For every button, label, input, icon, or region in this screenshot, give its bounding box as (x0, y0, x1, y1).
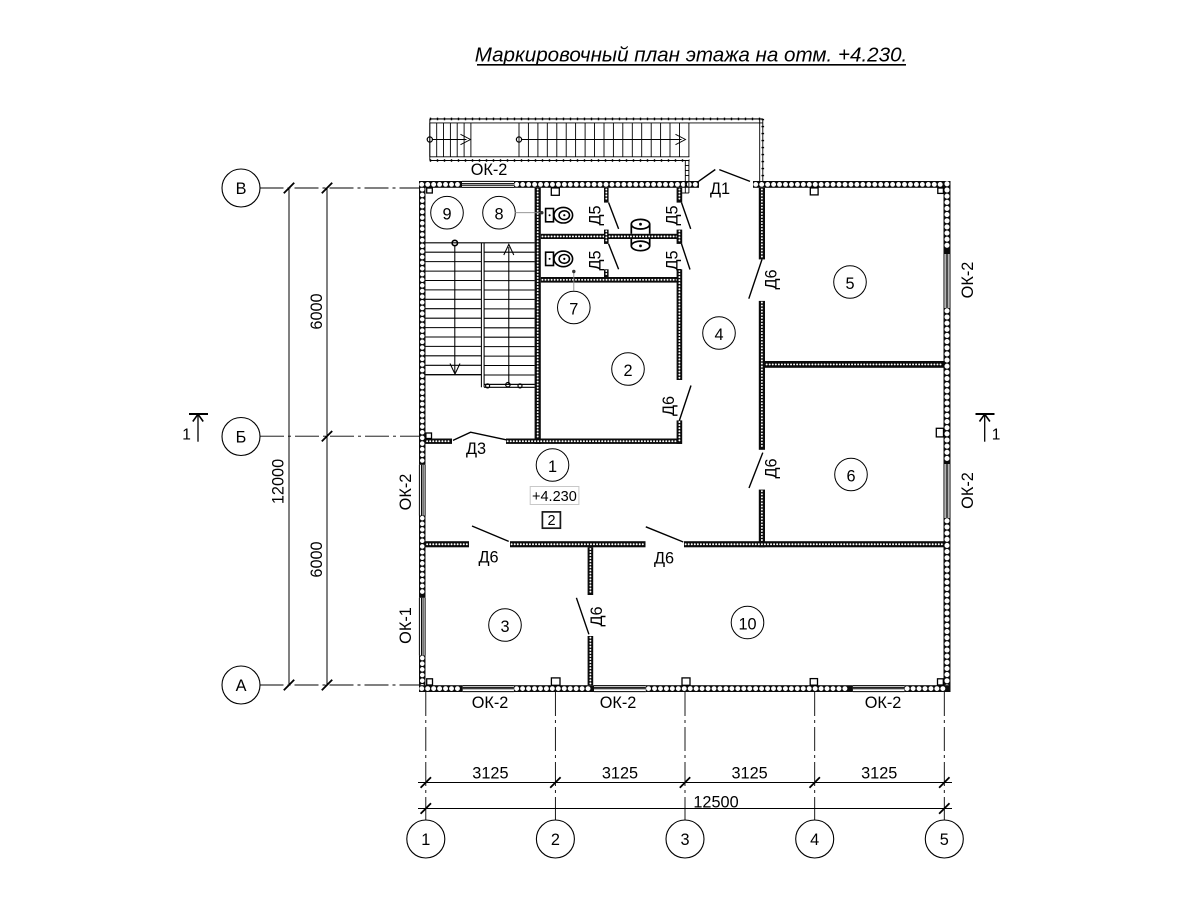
svg-text:+4.230: +4.230 (532, 489, 577, 505)
svg-text:ОК-2: ОК-2 (600, 694, 637, 712)
svg-text:ОК-2: ОК-2 (959, 262, 977, 299)
svg-text:1: 1 (992, 426, 1001, 443)
svg-text:2: 2 (547, 513, 555, 529)
svg-text:Д6: Д6 (660, 396, 678, 416)
svg-text:Д3: Д3 (466, 440, 486, 458)
svg-text:ОК-2: ОК-2 (471, 161, 508, 179)
svg-text:3: 3 (500, 618, 509, 636)
svg-text:Д6: Д6 (762, 269, 780, 289)
svg-text:1: 1 (421, 831, 430, 849)
svg-text:8: 8 (494, 206, 503, 224)
svg-text:ОК-2: ОК-2 (397, 474, 415, 511)
svg-text:2: 2 (551, 831, 560, 849)
svg-text:4: 4 (810, 831, 819, 849)
svg-text:Б: Б (236, 428, 247, 446)
svg-text:2: 2 (623, 362, 632, 380)
svg-text:10: 10 (738, 615, 756, 633)
svg-text:6000: 6000 (308, 293, 326, 329)
svg-text:3: 3 (680, 831, 689, 849)
svg-text:Д6: Д6 (762, 458, 780, 478)
svg-text:В: В (236, 180, 247, 198)
svg-text:Д5: Д5 (587, 250, 605, 270)
svg-text:12000: 12000 (270, 459, 288, 504)
svg-text:Д6: Д6 (588, 606, 606, 626)
svg-text:3125: 3125 (861, 765, 897, 783)
svg-text:3125: 3125 (472, 765, 508, 783)
svg-text:ОК-2: ОК-2 (472, 694, 509, 712)
svg-text:ОК-2: ОК-2 (959, 472, 977, 509)
svg-text:3125: 3125 (731, 765, 767, 783)
svg-text:Д5: Д5 (664, 250, 682, 270)
svg-text:9: 9 (442, 206, 451, 224)
svg-text:Маркировочный план этажа на от: Маркировочный план этажа на отм. +4.230. (475, 44, 908, 67)
svg-text:5: 5 (940, 831, 949, 849)
svg-text:ОК-1: ОК-1 (397, 607, 415, 644)
svg-text:4: 4 (714, 326, 723, 344)
svg-text:3125: 3125 (602, 765, 638, 783)
svg-text:7: 7 (569, 300, 578, 318)
svg-text:Д6: Д6 (654, 550, 674, 568)
svg-text:Д5: Д5 (664, 205, 682, 225)
svg-text:6000: 6000 (308, 541, 326, 577)
svg-text:6: 6 (846, 467, 855, 485)
svg-text:ОК-2: ОК-2 (865, 694, 902, 712)
svg-text:Д1: Д1 (710, 180, 730, 198)
svg-text:1: 1 (548, 458, 557, 476)
svg-text:12500: 12500 (693, 794, 738, 812)
svg-text:А: А (236, 677, 247, 695)
svg-text:5: 5 (845, 275, 854, 293)
svg-text:Д6: Д6 (478, 549, 498, 567)
svg-text:1: 1 (182, 427, 191, 444)
svg-text:Д5: Д5 (587, 205, 605, 225)
